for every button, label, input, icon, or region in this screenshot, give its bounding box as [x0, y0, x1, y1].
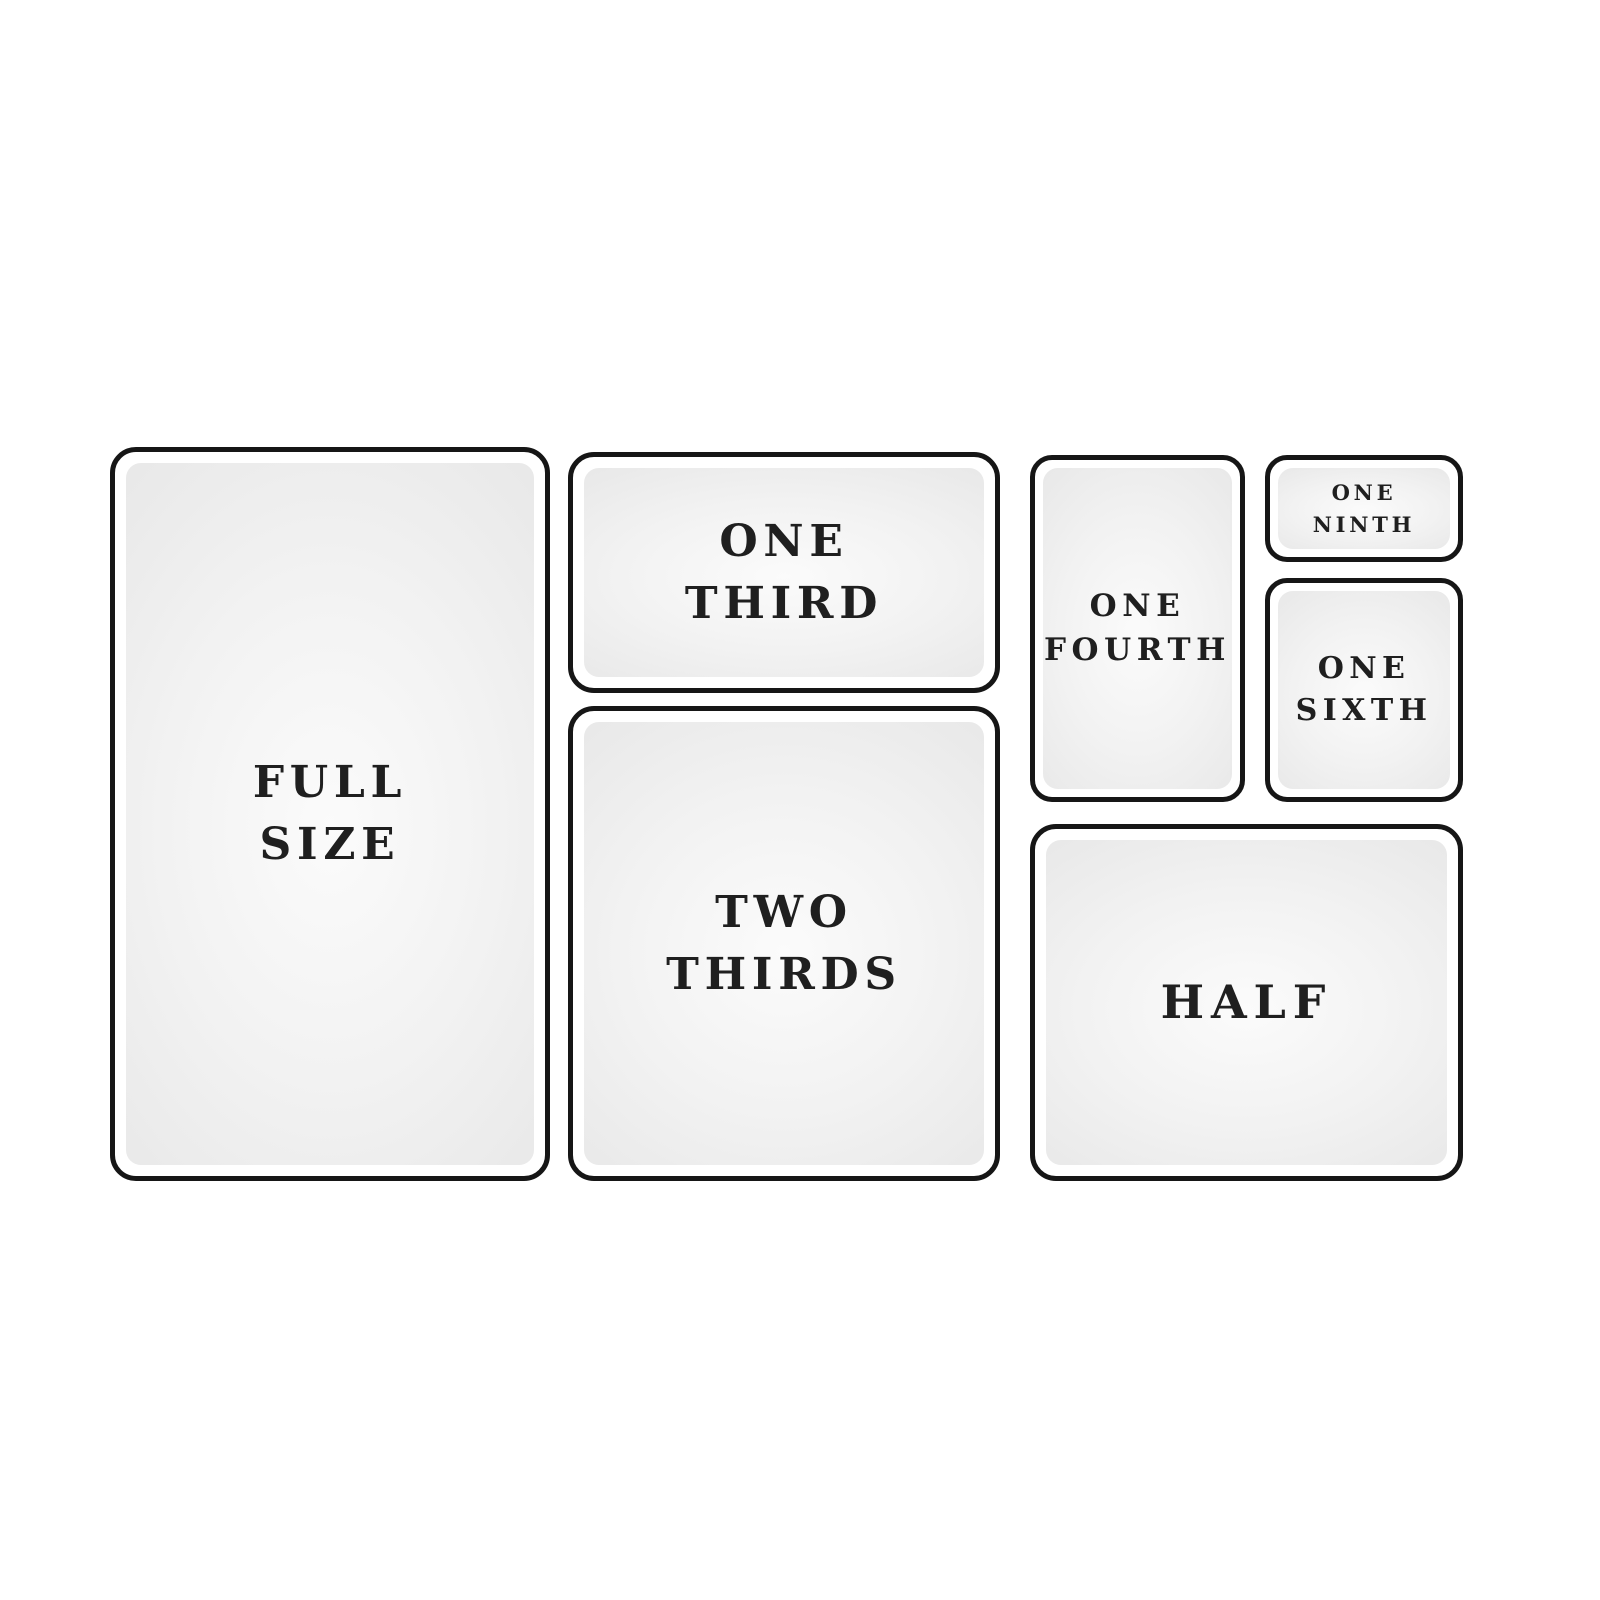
pan-size-diagram: FULL SIZE ONE THIRD TWO THIRDS ONE FOURT…	[0, 0, 1600, 1600]
pan-one-third: ONE THIRD	[568, 452, 1000, 693]
label-line: ONE	[1296, 648, 1433, 690]
pan-one-fourth-surface: ONE FOURTH	[1043, 468, 1232, 789]
label-line: FULL	[253, 752, 407, 814]
pan-half-label: HALF	[1161, 970, 1333, 1034]
pan-one-fourth-label: ONE FOURTH	[1044, 585, 1231, 672]
pan-one-sixth-surface: ONE SIXTH	[1278, 591, 1450, 789]
pan-one-third-surface: ONE THIRD	[584, 468, 984, 677]
label-line: HALF	[1161, 970, 1333, 1034]
label-line: ONE	[1313, 477, 1416, 509]
label-line: SIXTH	[1296, 690, 1433, 732]
pan-half: HALF	[1030, 824, 1463, 1181]
label-line: SIZE	[253, 814, 407, 876]
pan-full-size-label: FULL SIZE	[253, 752, 407, 875]
label-line: ONE	[685, 511, 883, 573]
label-line: TWO	[666, 882, 902, 944]
label-line: THIRD	[685, 573, 883, 635]
pan-two-thirds: TWO THIRDS	[568, 706, 1000, 1181]
pan-one-ninth-surface: ONE NINTH	[1278, 468, 1450, 549]
pan-two-thirds-label: TWO THIRDS	[666, 882, 902, 1005]
label-line: FOURTH	[1044, 629, 1231, 672]
pan-one-ninth: ONE NINTH	[1265, 455, 1463, 562]
pan-half-surface: HALF	[1046, 840, 1447, 1165]
pan-one-sixth-label: ONE SIXTH	[1296, 648, 1433, 732]
label-line: ONE	[1044, 585, 1231, 628]
pan-one-third-label: ONE THIRD	[685, 511, 883, 634]
pan-full-size-surface: FULL SIZE	[126, 463, 534, 1165]
label-line: NINTH	[1313, 509, 1416, 541]
label-line: THIRDS	[666, 944, 902, 1006]
pan-two-thirds-surface: TWO THIRDS	[584, 722, 984, 1165]
pan-one-fourth: ONE FOURTH	[1030, 455, 1245, 802]
pan-one-ninth-label: ONE NINTH	[1313, 477, 1416, 540]
pan-one-sixth: ONE SIXTH	[1265, 578, 1463, 802]
pan-full-size: FULL SIZE	[110, 447, 550, 1181]
